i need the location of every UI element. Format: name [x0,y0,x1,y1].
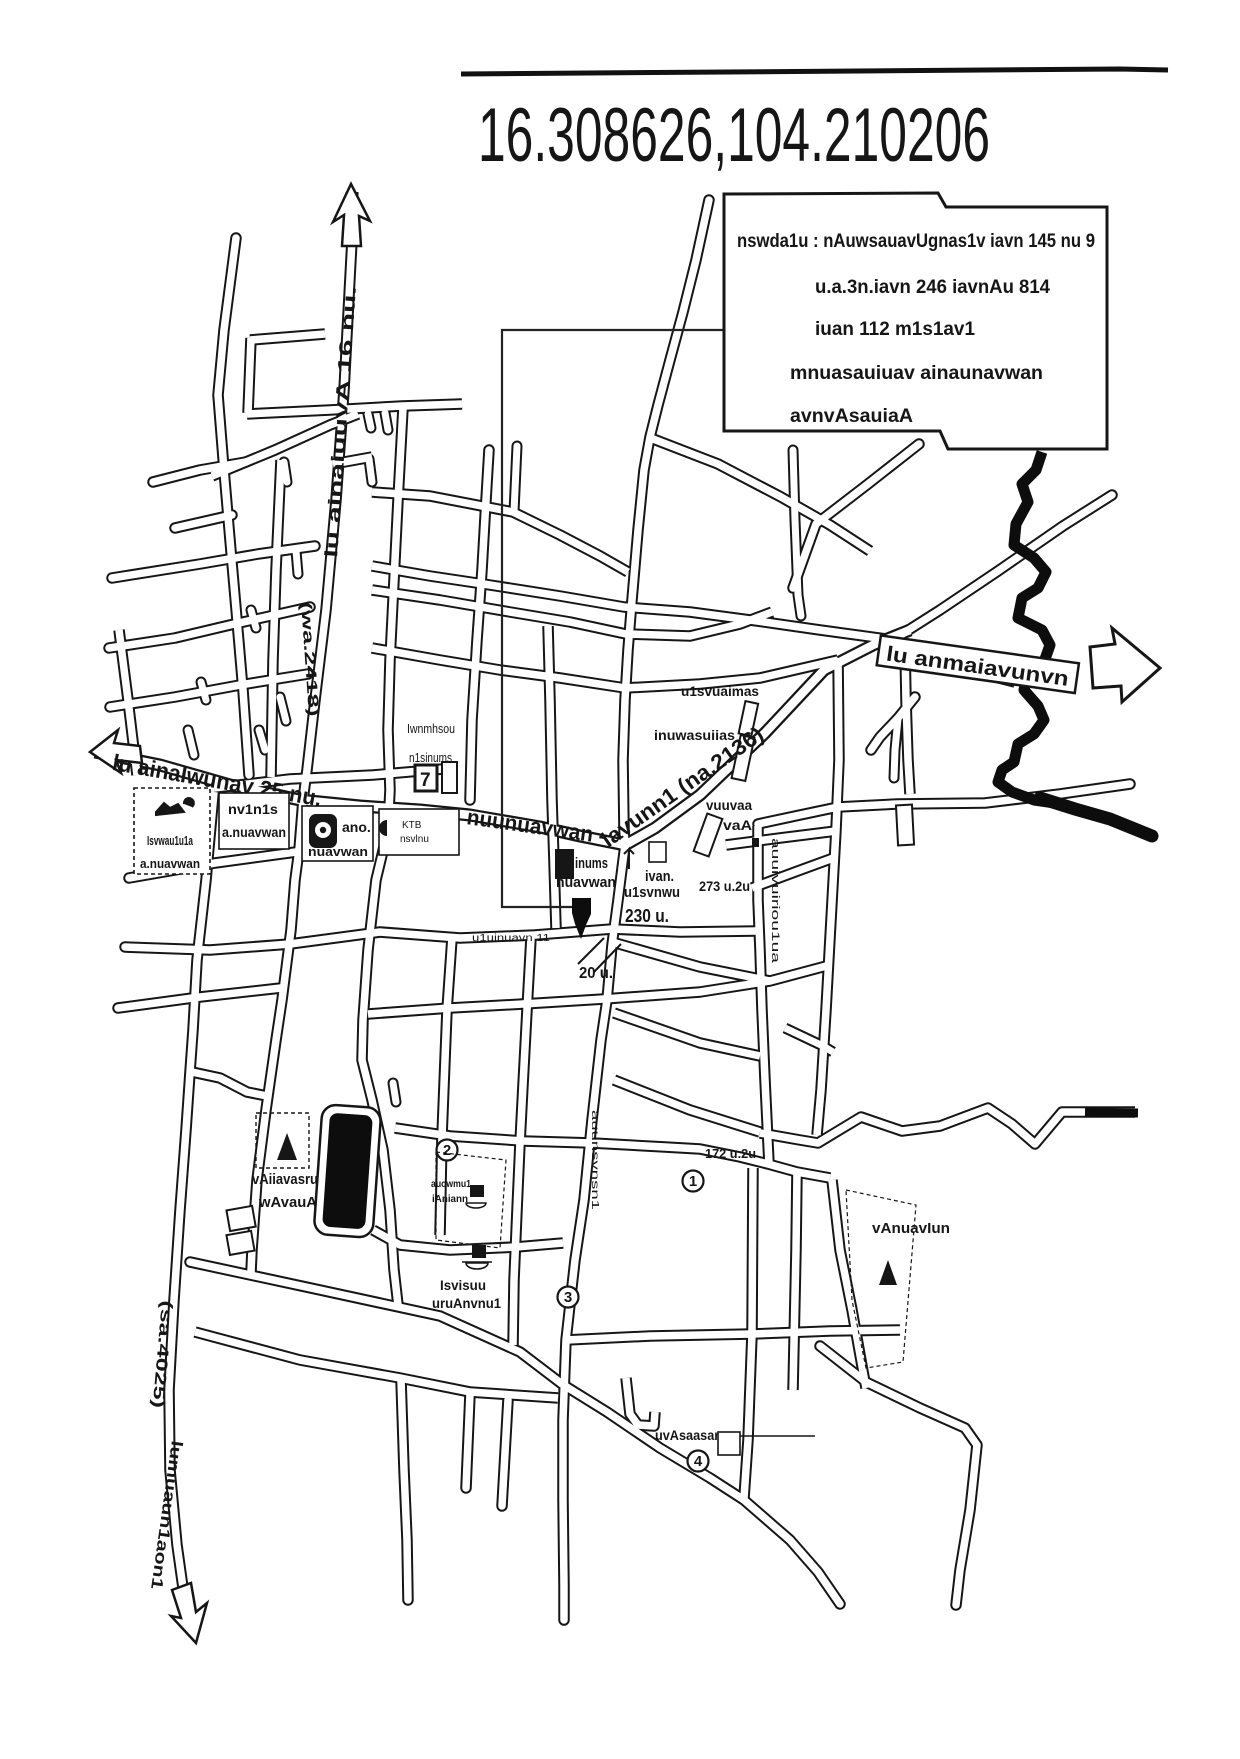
svg-text:inuwasuiias: inuwasuiias [654,727,735,743]
svg-text:a.nuavwan: a.nuavwan [140,856,200,871]
svg-text:vaA: vaA [723,817,752,833]
svg-text:wAvauA: wAvauA [258,1194,317,1211]
svg-text:172 u.2u: 172 u.2u [705,1146,756,1161]
svg-text:ano.: ano. [342,819,371,835]
svg-text:ivan.: ivan. [645,868,674,885]
svg-text:230 u.: 230 u. [625,906,669,926]
svg-text:vuuvaa: vuuvaa [706,797,752,813]
svg-text:a.nuavwan: a.nuavwan [222,824,286,840]
svg-text:auowmu1: auowmu1 [431,1179,471,1190]
svg-text:auunsvnsn1: auunsvnsn1 [589,1110,600,1211]
svg-text:KTB: KTB [402,820,422,831]
svg-text:2: 2 [443,1142,451,1159]
svg-text:nswda1u : nAuwsauavUgnas1v ia: nswda1u : nAuwsauavUgnas1v iavn 145 nu 9 [737,231,1095,252]
svg-text:nuavwan: nuavwan [556,874,616,891]
svg-text:avnvAsauiaA: avnvAsauiaA [790,406,913,427]
svg-text:iAniann: iAniann [432,1194,468,1205]
svg-text:u1uinuavn 11: u1uinuavn 11 [472,933,551,944]
svg-text:Isvwau1u1a: Isvwau1u1a [147,833,193,848]
svg-text:vAnuavIun: vAnuavIun [872,1220,950,1237]
svg-text:Isvisuu: Isvisuu [440,1277,486,1293]
svg-text:16.308626,104.210206: 16.308626,104.210206 [478,93,990,178]
svg-text:inums: inums [575,855,608,872]
svg-text:u.a.3n.iavn 246 iavnAu 814: u.a.3n.iavn 246 iavnAu 814 [815,277,1050,298]
svg-text:iuan 112 m1s1av1: iuan 112 m1s1av1 [815,319,975,340]
svg-text:uruAnvnu1: uruAnvnu1 [432,1295,501,1311]
svg-text:u1svuaimas: u1svuaimas [681,683,759,699]
svg-text:Iwnmhsou: Iwnmhsou [407,721,455,736]
svg-text:7: 7 [420,770,431,791]
svg-text:4: 4 [694,1453,703,1470]
svg-text:273 u.2u: 273 u.2u [699,878,750,894]
svg-text:u1svnwu: u1svnwu [624,884,680,901]
svg-text:1: 1 [689,1173,697,1190]
svg-text:nsvlnu: nsvlnu [400,834,429,845]
svg-text:auuivuiriou1ua: auuivuiriou1ua [769,838,781,965]
svg-text:20 u.: 20 u. [579,965,613,982]
svg-text:n1sinums: n1sinums [409,750,452,765]
svg-text:nuavwan: nuavwan [308,844,368,859]
svg-text:3: 3 [564,1289,572,1306]
svg-text:vAiiavasru: vAiiavasru [252,1171,318,1188]
svg-text:mnuasauiuav ainaunavwan: mnuasauiuav ainaunavwan [790,363,1043,384]
svg-text:nv1n1s: nv1n1s [228,801,278,817]
svg-text:uvAsaasan: uvAsaasan [655,1427,722,1443]
